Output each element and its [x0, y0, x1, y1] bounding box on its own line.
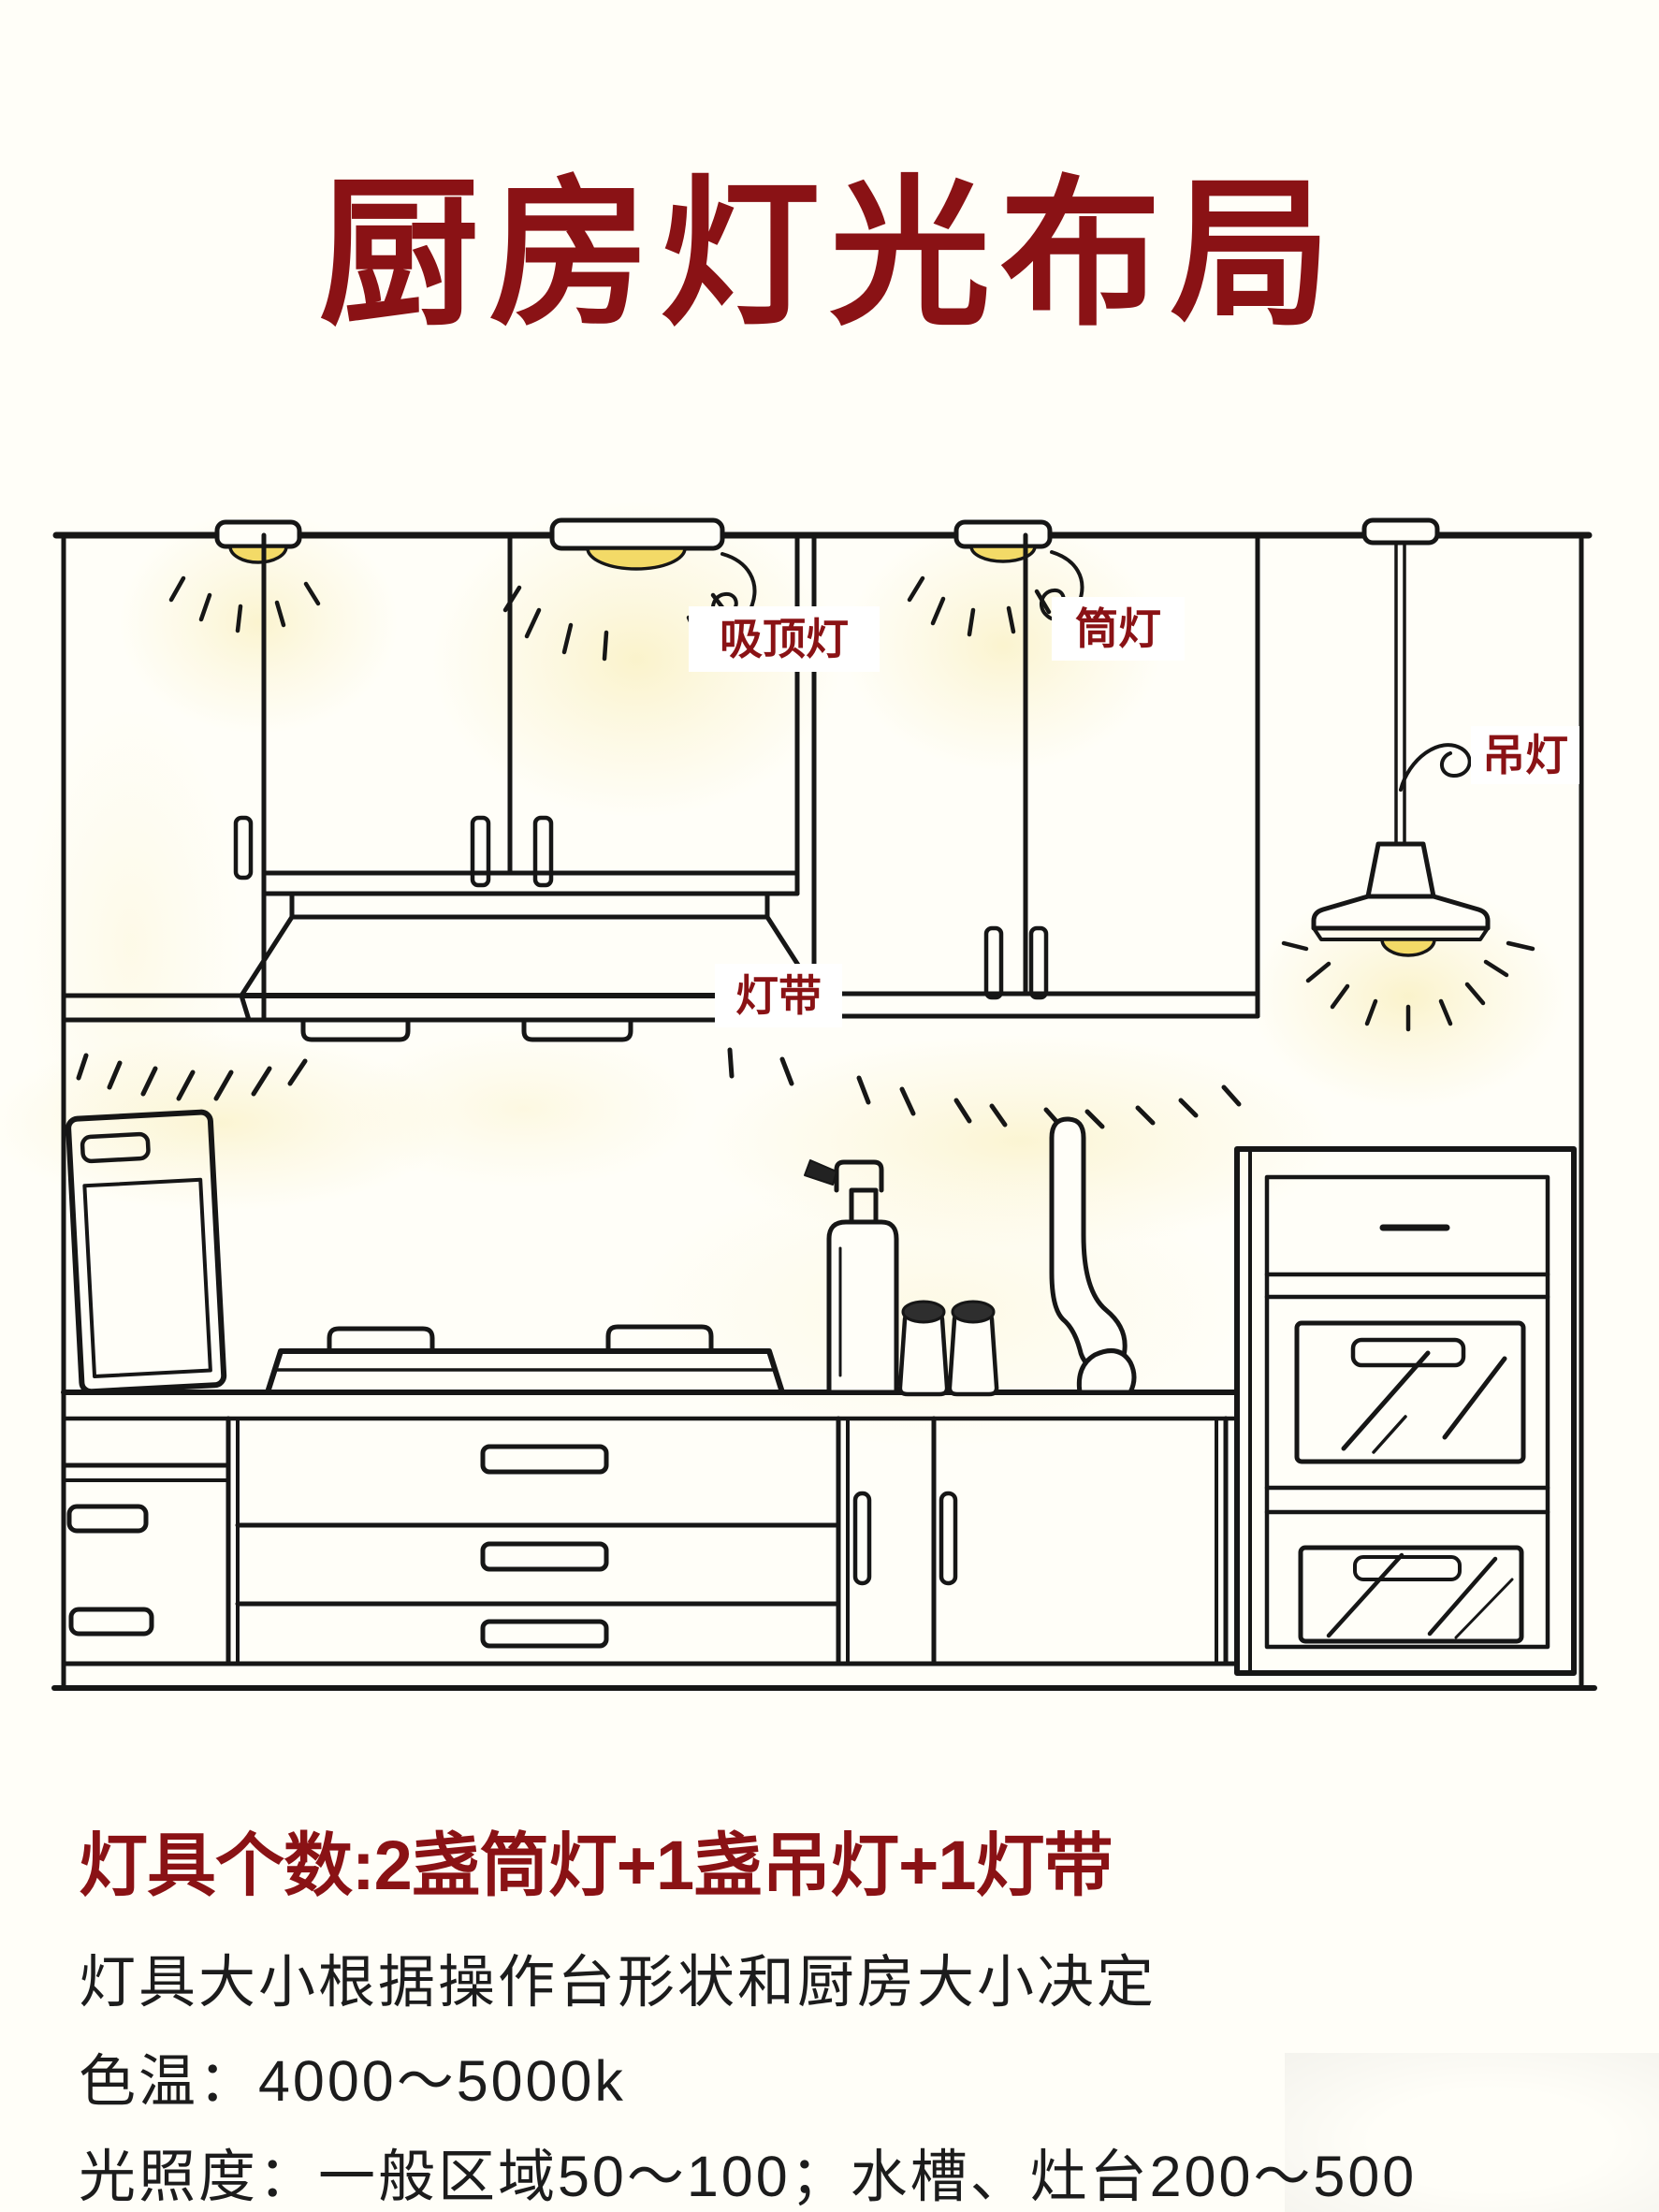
label-ceiling-light: 吸顶灯: [689, 606, 880, 672]
label-pendant-light: 吊灯: [1471, 726, 1579, 784]
infographic-page: 厨房灯光布局: [0, 0, 1659, 2212]
label-light-strip: 灯带: [715, 964, 842, 1027]
label-downlight: 筒灯: [1052, 597, 1185, 661]
oven-lower: [1301, 1548, 1521, 1641]
oven-upper: [1297, 1323, 1523, 1462]
base-cabinet-sink-doors: [64, 1419, 1237, 1664]
wire-curl-icon: [1401, 745, 1470, 790]
base-cabinet-left: [64, 1465, 228, 1634]
note-fixture-sizing: 灯具大小根据操作台形状和厨房大小决定: [79, 1935, 1157, 2018]
note-illuminance: 光照度：一般区域50～100；水槽、灶台200～500: [79, 2130, 1417, 2212]
base-cabinet-drawers: [228, 1419, 838, 1664]
oven-tower-cabinet: [1237, 1149, 1574, 1673]
note-fixture-count: 灯具个数:2盏筒灯+1盏吊灯+1灯带: [79, 1810, 1113, 1910]
note-color-temperature: 色温：4000～5000k: [79, 2034, 626, 2117]
